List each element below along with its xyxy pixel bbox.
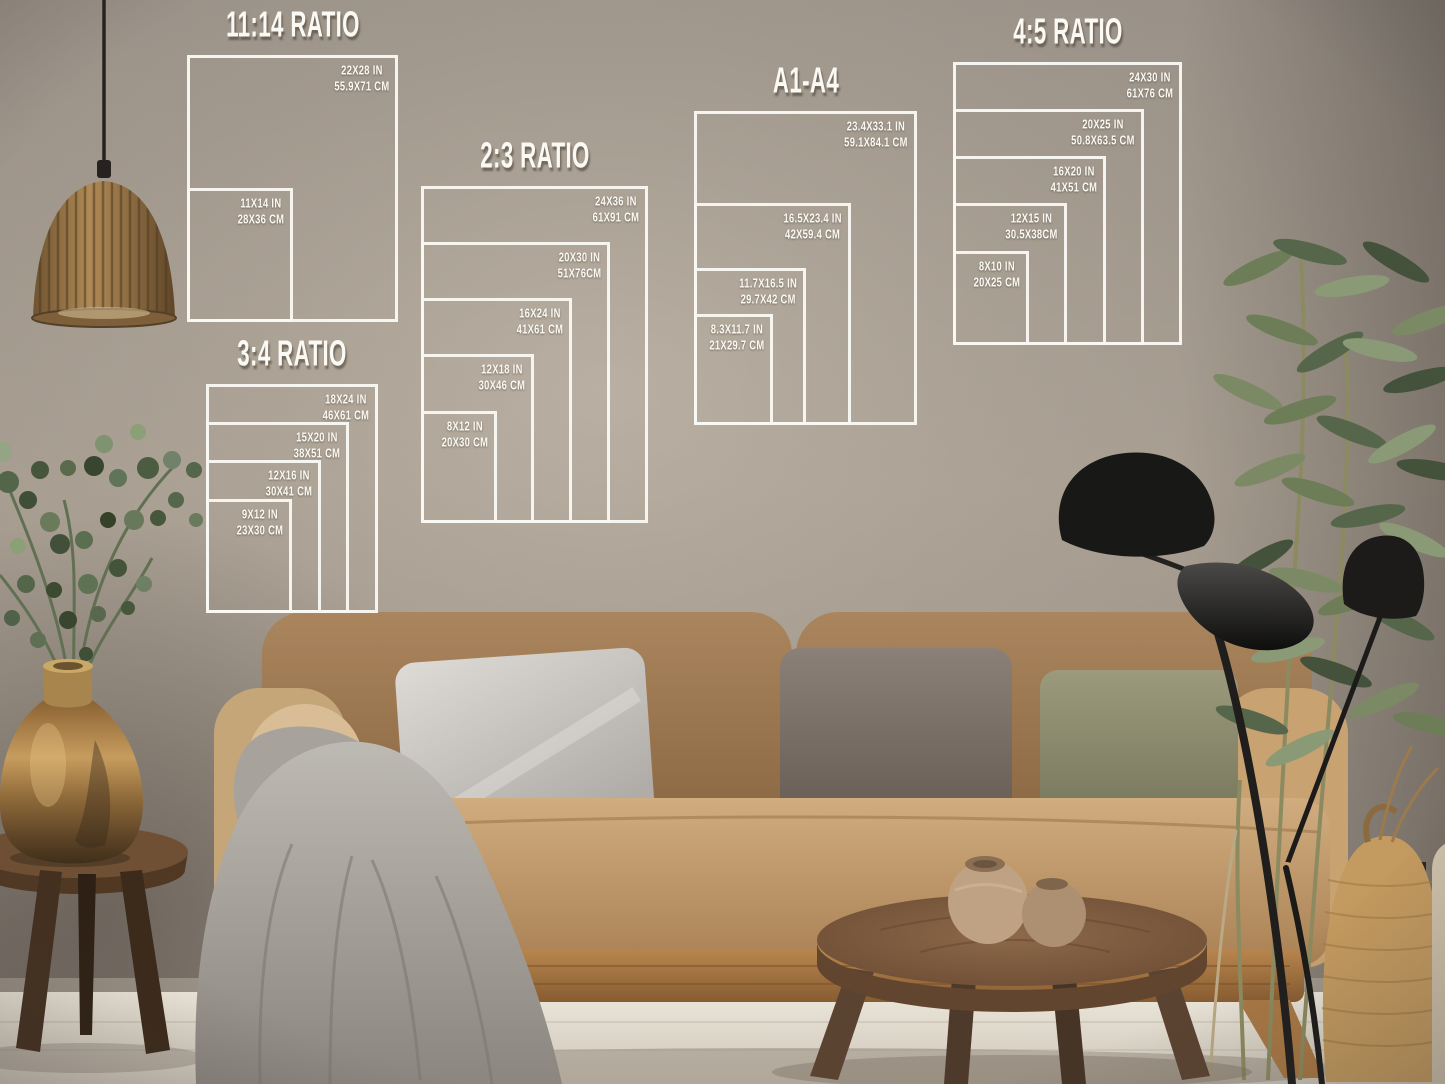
size-frame: 9X12 IN 23X30 CM [206,499,292,613]
size-inches: 16.5X23.4 IN [784,211,842,227]
size-label: 16.5X23.4 IN 42X59.4 CM [784,211,842,243]
diagram-title: 3:4 RATIO [237,333,346,375]
size-label: 24X30 IN 61X76 CM [1126,70,1173,102]
size-cm: 61X91 CM [592,210,639,226]
size-inches: 23.4X33.1 IN [844,119,908,135]
size-inches: 22X28 IN [334,63,389,79]
size-inches: 18X24 IN [322,392,369,408]
size-cm: 41X51 CM [1050,180,1097,196]
size-cm: 51X76CM [557,266,601,282]
diagram-title: 2:3 RATIO [480,135,589,177]
size-label: 16X20 IN 41X51 CM [1050,164,1097,196]
size-label: 20X25 IN 50.8X63.5 CM [1071,117,1135,149]
size-label: 11.7X16.5 IN 29.7X42 CM [739,276,797,308]
size-inches: 12X18 IN [478,362,525,378]
size-frame: 8.3X11.7 IN 21X29.7 CM [694,314,773,425]
size-label: 15X20 IN 38X51 CM [293,430,340,462]
size-label: 18X24 IN 46X61 CM [322,392,369,424]
size-cm: 20X25 CM [973,275,1020,291]
size-inches: 8X12 IN [441,419,488,435]
size-cm: 29.7X42 CM [739,292,797,308]
size-inches: 9X12 IN [236,507,283,523]
size-label: 11X14 IN 28X36 CM [237,196,284,228]
size-frame: 11X14 IN 28X36 CM [187,188,293,322]
diagram-title: 11:14 RATIO [226,4,360,46]
size-inches: 8.3X11.7 IN [709,322,764,338]
size-cm: 55.9X71 CM [334,79,389,95]
size-label: 12X18 IN 30X46 CM [478,362,525,394]
size-cm: 30.5X38CM [1006,227,1058,243]
size-inches: 8X10 IN [973,259,1020,275]
size-inches: 20X25 IN [1071,117,1135,133]
size-cm: 30X41 CM [265,484,312,500]
size-cm: 28X36 CM [237,212,284,228]
size-cm: 20X30 CM [441,435,488,451]
size-cm: 50.8X63.5 CM [1071,133,1135,149]
diagram-title: A1-A4 [772,60,838,102]
size-label: 8.3X11.7 IN 21X29.7 CM [709,322,764,354]
size-inches: 24X36 IN [592,194,639,210]
size-inches: 12X16 IN [265,468,312,484]
size-label: 12X15 IN 30.5X38CM [1006,211,1058,243]
size-cm: 42X59.4 CM [784,227,842,243]
size-inches: 12X15 IN [1006,211,1058,227]
size-frame: 8X10 IN 20X25 CM [953,251,1029,345]
size-label: 8X10 IN 20X25 CM [973,259,1020,291]
size-label: 12X16 IN 30X41 CM [265,468,312,500]
size-inches: 11X14 IN [237,196,284,212]
size-label: 24X36 IN 61X91 CM [592,194,639,226]
size-inches: 20X30 IN [557,250,601,266]
size-inches: 16X24 IN [516,306,563,322]
size-cm: 61X76 CM [1126,86,1173,102]
ratio-diagram-11-14: 11:14 RATIO 22X28 IN 55.9X71 CM 11X14 IN… [187,55,398,322]
size-label: 22X28 IN 55.9X71 CM [334,63,389,95]
size-inches: 16X20 IN [1050,164,1097,180]
size-inches: 24X30 IN [1126,70,1173,86]
print-size-guide: 11:14 RATIO 22X28 IN 55.9X71 CM 11X14 IN… [0,0,1445,1084]
ratio-diagram-3-4: 3:4 RATIO 18X24 IN 46X61 CM 15X20 IN 38X… [206,384,378,613]
diagram-title: 4:5 RATIO [1013,11,1122,53]
size-inches: 15X20 IN [293,430,340,446]
size-cm: 21X29.7 CM [709,338,764,354]
size-label: 9X12 IN 23X30 CM [236,507,283,539]
ratio-diagram-2-3: 2:3 RATIO 24X36 IN 61X91 CM 20X30 IN 51X… [421,186,648,523]
ratio-diagram-a1-a4: A1-A4 23.4X33.1 IN 59.1X84.1 CM 16.5X23.… [694,111,917,425]
size-cm: 23X30 CM [236,523,283,539]
size-inches: 11.7X16.5 IN [739,276,797,292]
ratio-diagram-4-5: 4:5 RATIO 24X30 IN 61X76 CM 20X25 IN 50.… [953,62,1182,345]
size-cm: 59.1X84.1 CM [844,135,908,151]
size-cm: 41X61 CM [516,322,563,338]
size-label: 20X30 IN 51X76CM [557,250,601,282]
size-label: 23.4X33.1 IN 59.1X84.1 CM [844,119,908,151]
size-cm: 30X46 CM [478,378,525,394]
size-label: 16X24 IN 41X61 CM [516,306,563,338]
size-frame: 8X12 IN 20X30 CM [421,411,497,523]
size-label: 8X12 IN 20X30 CM [441,419,488,451]
